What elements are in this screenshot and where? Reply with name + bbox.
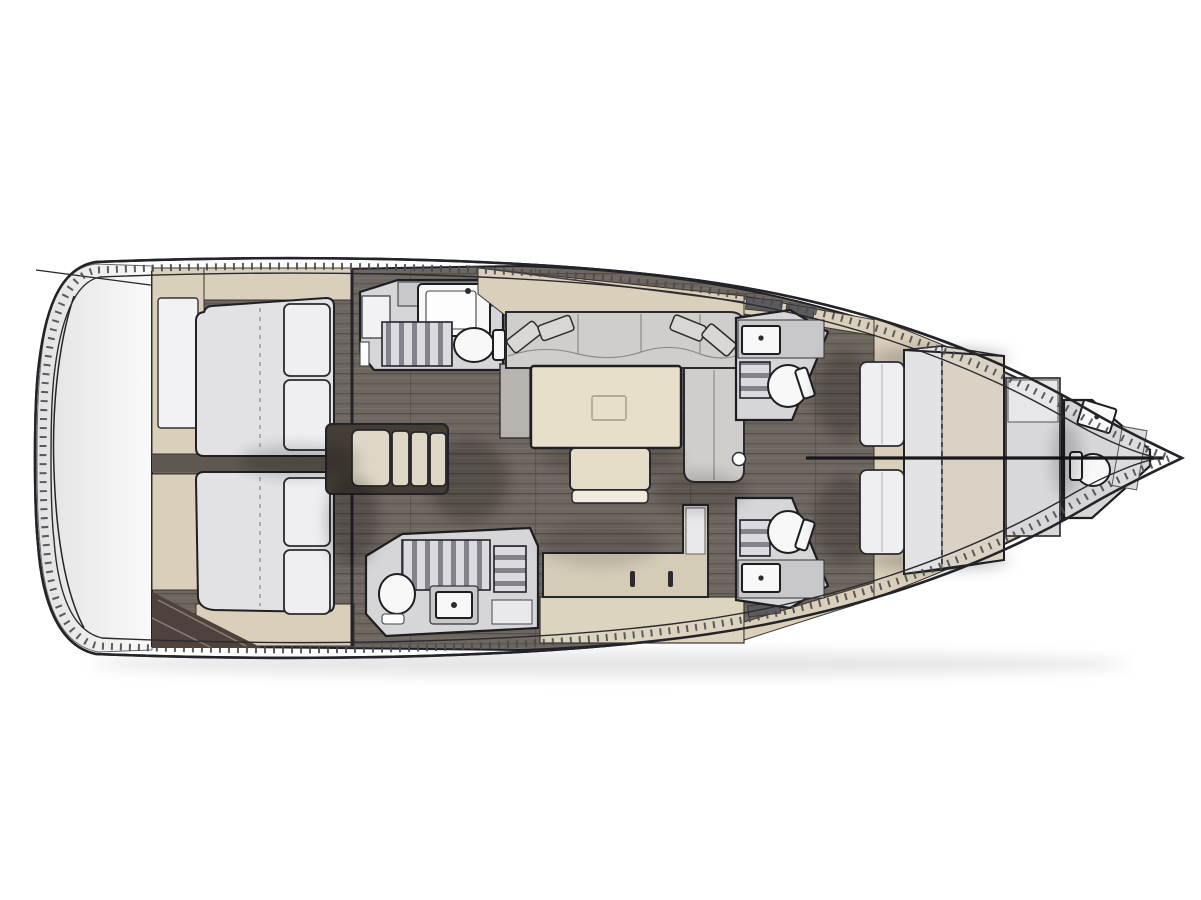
ottoman-bench [570,448,650,490]
pillow [284,550,330,614]
step [430,433,446,486]
floor-shadow [1052,420,1080,496]
shower-grating [740,362,770,398]
aft-cabin-lower [152,472,354,648]
faucet [758,335,763,340]
pillow [284,380,330,450]
drawer-handle [630,571,635,587]
owner-berth-mattress [904,346,942,574]
head-shelf [360,342,369,366]
ottoman-front [572,490,648,503]
saloon-table [531,366,681,448]
pillow [284,304,330,376]
drawer-handle [668,571,673,587]
toilet [379,574,415,614]
shower-grating [494,546,526,592]
step [411,432,428,486]
toilet-base [382,614,404,624]
floor-shadow [326,474,378,566]
aft-cabin-upper [152,268,352,456]
faucet [465,288,471,294]
floor-shadow [240,445,360,477]
head-aft-lower [366,528,538,636]
shower-grating [740,520,770,556]
faucet [758,575,763,580]
floor-shadow [654,472,746,512]
locker-door [158,298,198,428]
sofa-end-locker [500,364,530,438]
layout-plan-svg [0,0,1201,900]
door-knob [733,453,746,466]
floor-shadow [540,523,660,567]
pillow [284,478,330,546]
toilet [454,328,494,362]
faucet [451,602,457,608]
shower-grating [402,540,490,590]
shower-grating [382,322,452,366]
step [392,431,409,486]
galley-sink [686,508,705,554]
hanging-locker [152,474,198,590]
toilet-tank [493,330,505,360]
head-cabinet [492,600,532,624]
yacht-layout-plan [0,0,1201,900]
